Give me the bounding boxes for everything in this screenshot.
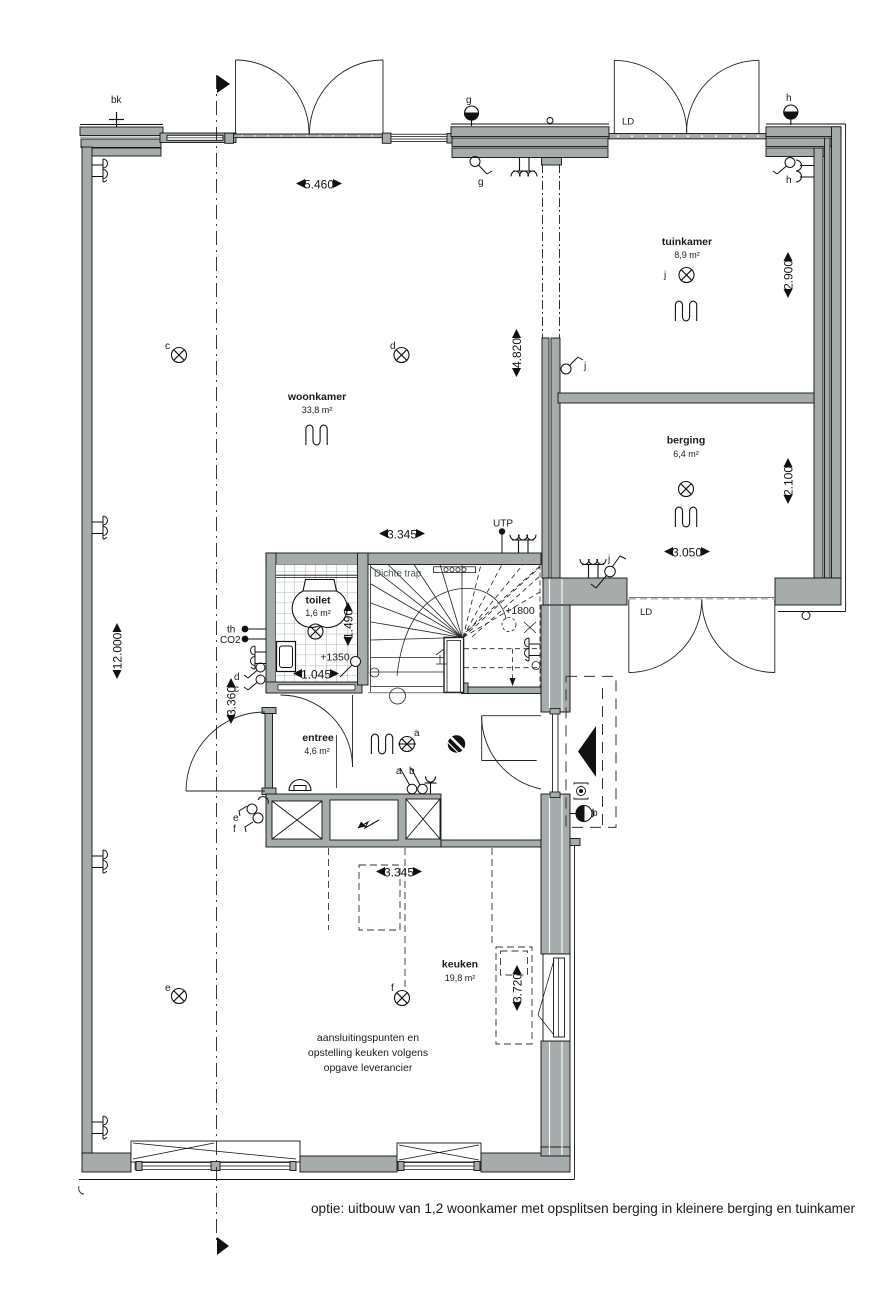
svg-text:e: e <box>233 813 239 824</box>
svg-text:b: b <box>409 766 415 777</box>
svg-text:3.345: 3.345 <box>384 866 414 880</box>
svg-text:bk: bk <box>111 95 123 106</box>
svg-text:6,4 m²: 6,4 m² <box>673 449 699 459</box>
svg-text:8,9 m²: 8,9 m² <box>674 250 700 260</box>
svg-text:c: c <box>234 684 239 695</box>
svg-text:berging: berging <box>667 435 706 447</box>
svg-text:woonkamer: woonkamer <box>287 391 346 403</box>
svg-text:th: th <box>227 625 235 636</box>
svg-text:2.100: 2.100 <box>782 466 796 496</box>
svg-text:f: f <box>233 824 236 835</box>
svg-text:3.050: 3.050 <box>672 546 702 560</box>
svg-text:d: d <box>390 341 396 352</box>
svg-text:keuken: keuken <box>442 959 478 971</box>
svg-text:h: h <box>786 175 792 186</box>
svg-text:LD: LD <box>640 607 652 618</box>
svg-text:5.460: 5.460 <box>304 178 334 192</box>
svg-text:CO2: CO2 <box>220 635 241 646</box>
svg-text:2.900: 2.900 <box>782 260 796 290</box>
svg-text:aansluitingspunten en: aansluitingspunten en <box>317 1032 419 1044</box>
svg-text:e: e <box>165 983 171 994</box>
svg-text:12.000: 12.000 <box>111 632 125 669</box>
svg-text:+1800: +1800 <box>505 605 535 617</box>
svg-text:c: c <box>165 341 170 352</box>
svg-text:g: g <box>466 95 472 106</box>
svg-text:h: h <box>786 93 792 104</box>
svg-text:tuinkamer: tuinkamer <box>662 236 712 248</box>
svg-text:opgave leverancier: opgave leverancier <box>324 1062 413 1074</box>
svg-text:j: j <box>583 361 586 372</box>
svg-text:entree: entree <box>302 732 334 744</box>
svg-text:33,8 m²: 33,8 m² <box>302 405 333 415</box>
svg-text:d: d <box>234 672 240 683</box>
svg-text:3.345: 3.345 <box>387 528 417 542</box>
svg-text:optie: uitbouw van 1,2 woonkam: optie: uitbouw van 1,2 woonkamer met ops… <box>311 1201 856 1216</box>
svg-text:b: b <box>592 808 598 819</box>
svg-text:f: f <box>391 983 394 994</box>
svg-text:opstelling keuken volgens: opstelling keuken volgens <box>308 1047 428 1059</box>
svg-text:19,8 m²: 19,8 m² <box>445 973 476 983</box>
svg-text:Dichte trap: Dichte trap <box>374 569 422 580</box>
svg-text:1.490: 1.490 <box>342 609 356 639</box>
svg-text:LD: LD <box>622 117 634 128</box>
svg-text:j: j <box>607 554 610 565</box>
svg-text:1,6 m²: 1,6 m² <box>305 608 331 618</box>
svg-text:3.720: 3.720 <box>511 973 525 1003</box>
svg-text:a: a <box>396 766 402 777</box>
svg-text:a: a <box>414 728 420 739</box>
svg-text:4.820: 4.820 <box>510 338 524 368</box>
svg-text:+1350: +1350 <box>320 652 350 664</box>
svg-text:UTP: UTP <box>493 519 513 530</box>
svg-text:g: g <box>478 177 484 188</box>
svg-text:1.045: 1.045 <box>301 668 331 682</box>
svg-text:j: j <box>663 270 666 281</box>
svg-text:4,6 m²: 4,6 m² <box>304 746 330 756</box>
svg-text:toilet: toilet <box>305 595 331 607</box>
